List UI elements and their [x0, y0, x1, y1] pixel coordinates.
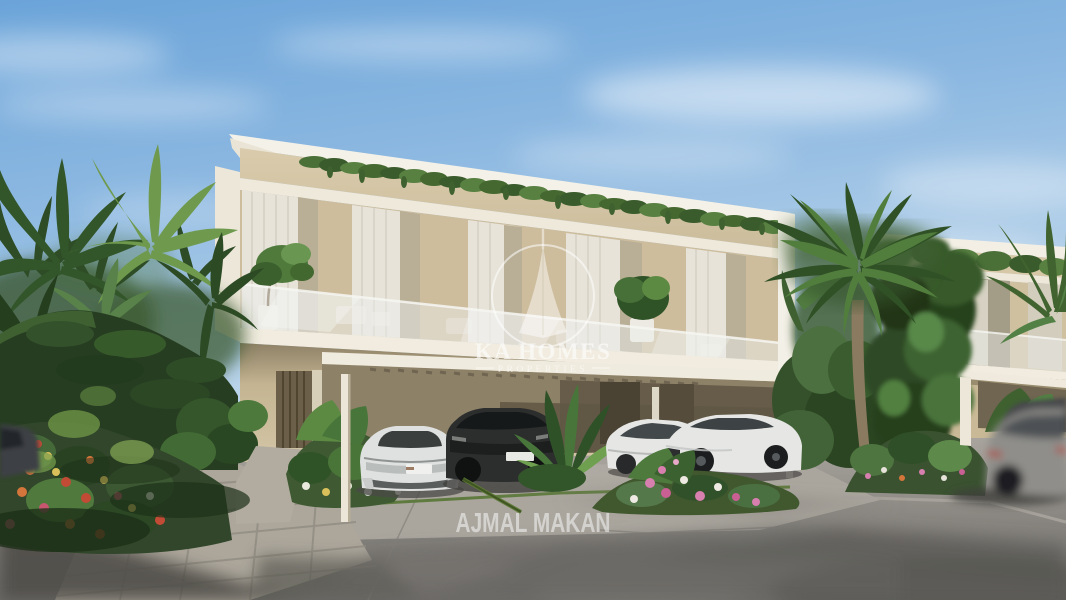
svg-text:PROPERTIES: PROPERTIES — [498, 365, 588, 375]
svg-text:AJMAL MAKAN: AJMAL MAKAN — [456, 507, 611, 538]
svg-text:KA HOMES: KA HOMES — [475, 339, 612, 364]
